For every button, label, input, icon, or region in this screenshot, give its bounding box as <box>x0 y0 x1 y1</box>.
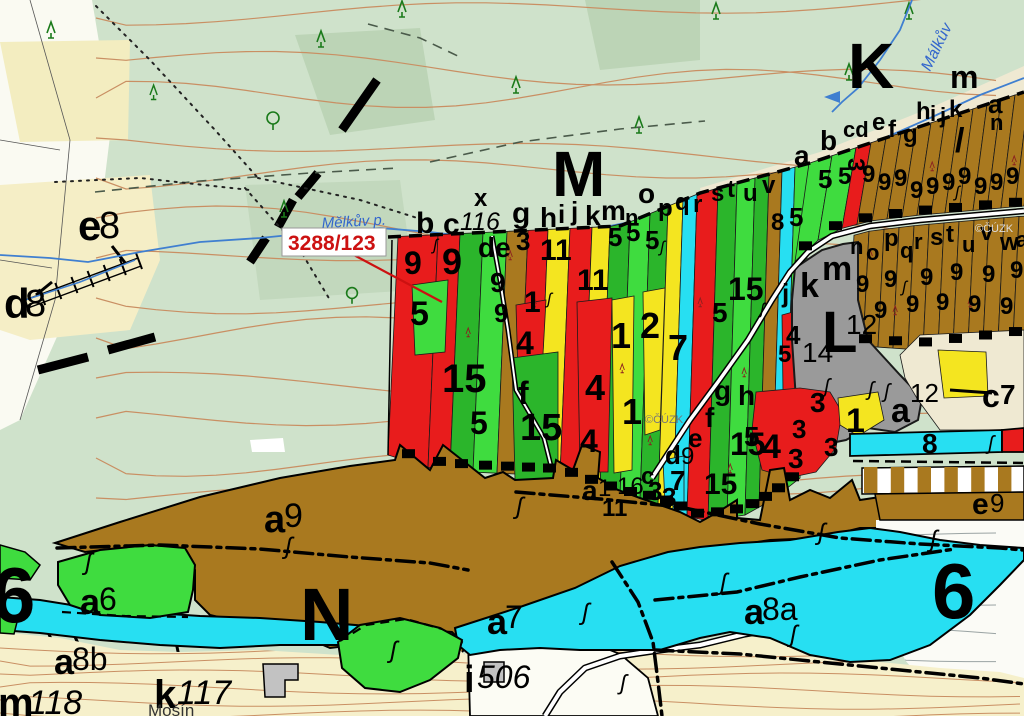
map-label: 4 <box>762 428 781 466</box>
stand-end-block <box>1009 198 1022 207</box>
map-label: 9 <box>906 291 919 318</box>
map-label: p <box>658 195 673 222</box>
map-label: j <box>570 196 578 226</box>
map-label: 3 <box>824 432 838 462</box>
map-label: a <box>1016 227 1024 252</box>
map-label: g <box>903 121 918 148</box>
map-label: j <box>781 278 789 308</box>
stand-end-block <box>919 337 932 346</box>
map-label: 12 <box>846 309 877 340</box>
map-label: j <box>939 103 946 128</box>
red-band-end <box>1002 428 1024 452</box>
map-label: p <box>884 225 899 252</box>
map-label: 1 <box>524 286 541 319</box>
map-label: 5 <box>626 217 640 247</box>
map-label: 4 <box>516 325 534 361</box>
map-label: k <box>949 96 963 123</box>
stand-end-block <box>522 463 535 472</box>
map-label: s <box>930 224 943 251</box>
stand-end-block <box>889 336 902 345</box>
map-label: 8a <box>762 591 798 627</box>
map-label: f <box>705 402 715 433</box>
watermark: ©ČÚZK <box>975 222 1014 235</box>
map-label: 8b <box>72 641 108 677</box>
map-label: 9 <box>968 291 981 318</box>
map-label: e <box>78 202 101 249</box>
stand-end-block <box>772 483 785 492</box>
watermark: ©ČÚZK <box>645 413 684 426</box>
map-label: 3 <box>662 482 676 512</box>
map-label: k <box>585 200 601 231</box>
map-label: 14 <box>802 337 833 368</box>
map-label: 5 <box>712 297 728 328</box>
map-label: de <box>478 232 511 263</box>
map-label: n <box>990 110 1003 135</box>
map-label: 6 <box>99 581 117 617</box>
map-label: 5 <box>470 405 488 441</box>
map-label: o <box>866 240 879 265</box>
map-label: g <box>714 375 731 406</box>
map-label: 5 <box>789 202 803 232</box>
stand-end-block <box>565 468 578 477</box>
map-label: 7 <box>1000 379 1016 410</box>
map-label: 5 <box>608 222 622 252</box>
map-label: 7 <box>505 599 523 635</box>
map-label: Mošín <box>148 701 194 716</box>
map-label: 15 <box>704 468 737 501</box>
map-label: 15 <box>520 407 562 449</box>
map-label: b <box>416 207 434 240</box>
clearing-check <box>918 467 931 493</box>
map-label: f <box>888 116 897 143</box>
stand-end-block <box>979 200 992 209</box>
map-canvas[interactable]: ʃʃʃʃʃʃʃʃʃʃʃʃʃʃʃʃʃʃʃʃ MKLN66xbc116ghijkmn… <box>0 0 1024 716</box>
map-label: 9 <box>1006 163 1019 190</box>
map-label: 9 <box>958 163 971 190</box>
map-label: c <box>443 208 460 241</box>
map-label: 506 <box>477 659 531 695</box>
map-label: 5 <box>645 225 659 255</box>
map-label: q <box>675 189 690 216</box>
stand-end-block <box>799 241 812 250</box>
forestry-map-svg: ʃʃʃʃʃʃʃʃʃʃʃʃʃʃʃʃʃʃʃʃ MKLN66xbc116ghijkmn… <box>0 0 1024 716</box>
map-label: i <box>930 101 936 126</box>
map-label: 7 <box>668 327 688 368</box>
map-label: 2 <box>640 305 660 346</box>
map-label: 9 <box>942 169 955 196</box>
stand-end-block <box>746 499 759 508</box>
stand-end-block <box>1009 327 1022 336</box>
map-label: 1 <box>622 391 642 432</box>
map-label: 6 <box>0 551 35 639</box>
map-label: a <box>264 499 286 541</box>
map-label: e <box>972 488 989 521</box>
white-blob <box>250 438 285 452</box>
map-label: a <box>582 475 598 506</box>
stand-end-block <box>919 206 932 215</box>
map-label: u <box>743 180 758 207</box>
map-label: 9 <box>442 241 462 282</box>
map-label: k <box>800 267 819 305</box>
map-label: / <box>955 122 965 160</box>
map-label: 11 <box>540 234 572 267</box>
map-label: f <box>518 375 529 411</box>
map-label: h <box>738 380 755 411</box>
map-label: 9 <box>1000 293 1013 320</box>
map-label: 9 <box>974 173 987 200</box>
map-label: 8 <box>99 205 120 247</box>
stand-end-block <box>949 334 962 343</box>
map-label: 5 <box>744 421 760 452</box>
map-label: 9 <box>878 169 891 196</box>
map-label: 9 <box>910 177 923 204</box>
map-label: 9 <box>494 298 508 328</box>
stand-end-block <box>759 492 772 501</box>
map-label: 5 <box>410 295 429 333</box>
map-label: 8 <box>25 283 46 325</box>
stand-end-block <box>433 457 446 466</box>
map-label: s <box>711 180 724 207</box>
map-label: c <box>982 378 1000 414</box>
map-label: 15 <box>728 271 764 307</box>
parcel-number-label: 3288/123 <box>288 232 376 255</box>
stand-end-block <box>889 209 902 218</box>
map-label: r <box>914 229 923 254</box>
map-label: 1 <box>611 315 631 356</box>
map-label: 4 <box>585 367 605 408</box>
clearing-check <box>864 467 877 493</box>
map-label: m <box>822 250 852 288</box>
stand-end-block <box>479 461 492 470</box>
clearing-check <box>944 467 957 493</box>
map-label: K <box>848 30 894 102</box>
map-label: v <box>762 172 776 199</box>
map-label: h <box>916 98 931 125</box>
map-label: 12 <box>910 378 939 408</box>
map-label: 9 <box>1010 257 1023 284</box>
map-label: 3 <box>792 414 806 444</box>
map-label: 9 <box>894 165 907 192</box>
map-label: 8 <box>922 428 938 459</box>
stand-end-block <box>501 462 514 471</box>
map-label: 9 <box>950 259 963 286</box>
map-label: t <box>727 176 735 203</box>
map-label: 4 <box>580 423 598 459</box>
map-label: 9 <box>926 173 939 200</box>
map-label: 9 <box>920 264 933 291</box>
green-parcel-a6 <box>58 545 195 618</box>
stand-end-block <box>859 213 872 222</box>
map-label: 9 <box>490 267 506 298</box>
map-label: h <box>540 202 557 233</box>
map-label: i <box>464 659 475 701</box>
map-label: q <box>900 238 913 263</box>
map-label: e <box>872 109 885 136</box>
map-label: r <box>693 191 702 218</box>
map-label: 11 <box>602 495 627 522</box>
stand-end-block <box>543 464 556 473</box>
map-label: b <box>820 125 837 156</box>
map-label: 1 <box>846 402 865 440</box>
stand-end-block <box>949 203 962 212</box>
map-label: i <box>558 199 565 229</box>
map-label: a <box>891 392 911 430</box>
map-label: 9 <box>982 261 995 288</box>
map-label: 3 <box>788 443 804 474</box>
map-label: 9 <box>284 497 303 535</box>
map-label: 3 <box>810 387 826 418</box>
clearing-check <box>891 467 904 493</box>
stand-end-block <box>979 331 992 340</box>
map-label: 9 <box>936 289 949 316</box>
map-label: 9 <box>404 245 422 281</box>
map-label: cd <box>843 117 869 142</box>
stand-end-block <box>829 221 842 230</box>
stand-end-block <box>455 459 468 468</box>
map-label: o <box>638 178 655 209</box>
map-label: t <box>946 221 954 248</box>
map-label: u <box>962 232 975 257</box>
map-label: 9 <box>856 271 869 298</box>
map-label: 3 <box>648 476 662 506</box>
map-label: 6 <box>932 547 975 635</box>
map-label: 8 <box>771 209 784 236</box>
stand-end-block <box>730 504 743 513</box>
map-label: 15 <box>442 357 487 401</box>
map-label: 9 <box>990 169 1003 196</box>
map-label: 3 <box>516 226 530 256</box>
yellow-patch-tl <box>0 40 130 142</box>
stand-end-block <box>402 449 415 458</box>
map-label: a <box>80 581 101 622</box>
map-label: 11 <box>577 264 609 297</box>
map-label: 5 <box>818 164 832 194</box>
map-label: Mělkův p. <box>321 212 386 232</box>
map-label: 9 <box>862 161 875 188</box>
map-label: 5 <box>778 341 791 368</box>
map-label: m <box>950 59 978 95</box>
map-label: 118 <box>28 684 82 716</box>
map-label: 9 <box>990 488 1004 518</box>
map-label: 9 <box>884 266 897 293</box>
map-label: N <box>300 573 353 656</box>
map-label: a <box>794 140 810 171</box>
